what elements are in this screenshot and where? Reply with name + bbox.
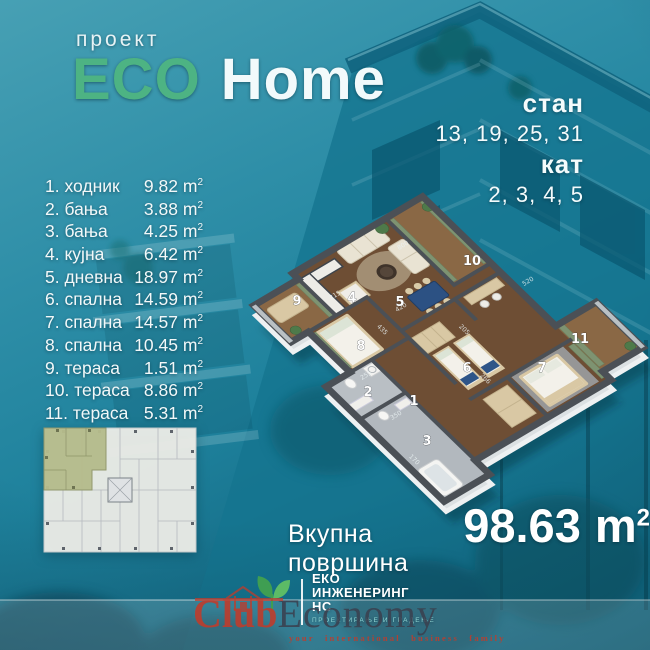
kat-numbers: 2, 3, 4, 5 xyxy=(488,180,584,210)
total-area: Вкупна површина 98.63 m2 xyxy=(288,498,650,578)
room-area: 4.25 xyxy=(144,221,178,241)
room-label: 9. тераса xyxy=(45,358,120,379)
area-unit: m2 xyxy=(183,176,203,196)
room-label: 2. бања xyxy=(45,199,108,220)
total-area-label: Вкупна површина xyxy=(288,520,449,578)
watermark-wordmark: Club Economy xyxy=(193,590,506,637)
room-row: 10. тераса8.86 m2 xyxy=(45,380,203,403)
room-label: 6. спална xyxy=(45,289,122,310)
watermark-economy: Economy xyxy=(278,590,438,637)
room-area: 8.86 xyxy=(144,380,178,400)
room-number: 9 xyxy=(292,294,301,309)
room-label: 8. спална xyxy=(45,335,122,356)
stan-numbers: 13, 19, 25, 31 xyxy=(435,119,584,149)
kat-label: кат xyxy=(541,149,584,180)
room-row: 2. бања3.88 m2 xyxy=(45,199,203,222)
area-unit: m2 xyxy=(183,312,203,332)
project-title: ECO Home xyxy=(72,46,386,113)
area-unit: m2 xyxy=(183,403,203,423)
developer-line1: ЕКО xyxy=(312,572,435,586)
area-unit: m2 xyxy=(183,244,203,264)
room-area: 18.97 xyxy=(134,267,178,287)
room-label: 4. кујна xyxy=(45,244,104,265)
room-label: 11. тераса xyxy=(45,403,128,424)
room-number: 4 xyxy=(347,291,356,306)
room-area: 14.57 xyxy=(134,312,178,332)
room-row: 7. спална14.57 m2 xyxy=(45,312,203,335)
room-number: 11 xyxy=(571,332,589,347)
area-unit: m2 xyxy=(183,221,203,241)
room-number: 10 xyxy=(463,254,481,269)
room-number: 1 xyxy=(409,394,418,409)
room-label: 3. бања xyxy=(45,221,108,242)
room-row: 11. тераса5.31 m2 xyxy=(45,403,203,426)
area-unit: m2 xyxy=(183,335,203,355)
room-row: 8. спална10.45 m2 xyxy=(45,335,203,358)
stan-label: стан xyxy=(523,88,584,119)
total-area-unit: m2 xyxy=(595,498,650,553)
watermark-tagline: your international business family xyxy=(289,633,506,643)
room-row: 6. спална14.59 m2 xyxy=(45,289,203,312)
room-row: 3. бања4.25 m2 xyxy=(45,221,203,244)
area-unit: m2 xyxy=(183,289,203,309)
title-eco: ECO xyxy=(72,46,201,113)
room-row: 1. ходник9.82 m2 xyxy=(45,176,203,199)
room-row: 4. кујна6.42 m2 xyxy=(45,244,203,267)
room-number: 3 xyxy=(422,434,431,449)
room-label: 7. спална xyxy=(45,312,122,333)
room-area: 1.51 xyxy=(144,358,178,378)
room-row: 9. тераса1.51 m2 xyxy=(45,358,203,381)
room-area: 5.31 xyxy=(144,403,178,423)
poster: проект ECO Home стан 13, 19, 25, 31 кат … xyxy=(0,0,650,650)
room-number: 2 xyxy=(363,385,372,400)
room-area: 10.45 xyxy=(134,335,178,355)
room-area: 9.82 xyxy=(144,176,178,196)
room-label: 1. ходник xyxy=(45,176,120,197)
room-number: 8 xyxy=(356,339,365,354)
room-list: 1. ходник9.82 m2 2. бања3.88 m2 3. бања4… xyxy=(45,176,203,426)
watermark-club: Club xyxy=(193,590,278,637)
room-number: 6 xyxy=(462,361,471,376)
area-unit: m2 xyxy=(183,358,203,378)
room-area: 6.42 xyxy=(144,244,178,264)
watermark: Club Economy your international business… xyxy=(193,590,506,643)
room-area: 14.59 xyxy=(134,289,178,309)
room-row: 5. дневна18.97 m2 xyxy=(45,267,203,290)
area-unit: m2 xyxy=(183,380,203,400)
area-unit: m2 xyxy=(183,199,203,219)
total-area-value: 98.63 xyxy=(463,498,581,553)
title-home: Home xyxy=(221,46,386,113)
room-label: 5. дневна xyxy=(45,267,123,288)
room-label: 10. тераса xyxy=(45,380,130,401)
building-floor-plan xyxy=(42,426,198,554)
room-area: 3.88 xyxy=(144,199,178,219)
area-unit: m2 xyxy=(183,267,203,287)
unit-info: стан 13, 19, 25, 31 кат 2, 3, 4, 5 xyxy=(435,88,584,210)
room-number: 7 xyxy=(537,361,546,376)
svg-text:520: 520 xyxy=(521,276,535,288)
